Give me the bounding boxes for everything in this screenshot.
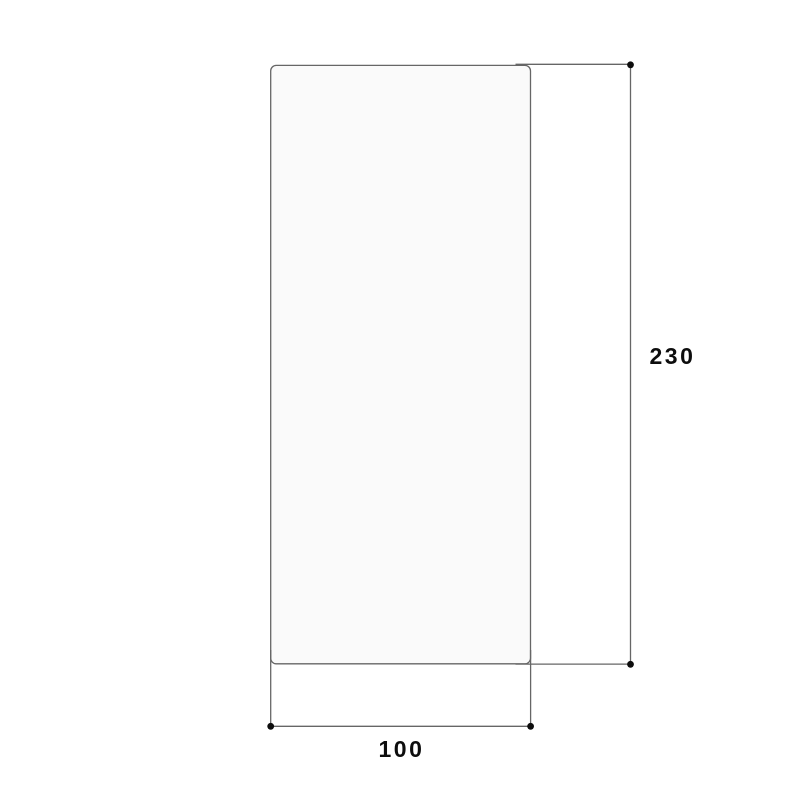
svg-text:230: 230	[650, 343, 696, 369]
svg-text:100: 100	[379, 736, 425, 762]
